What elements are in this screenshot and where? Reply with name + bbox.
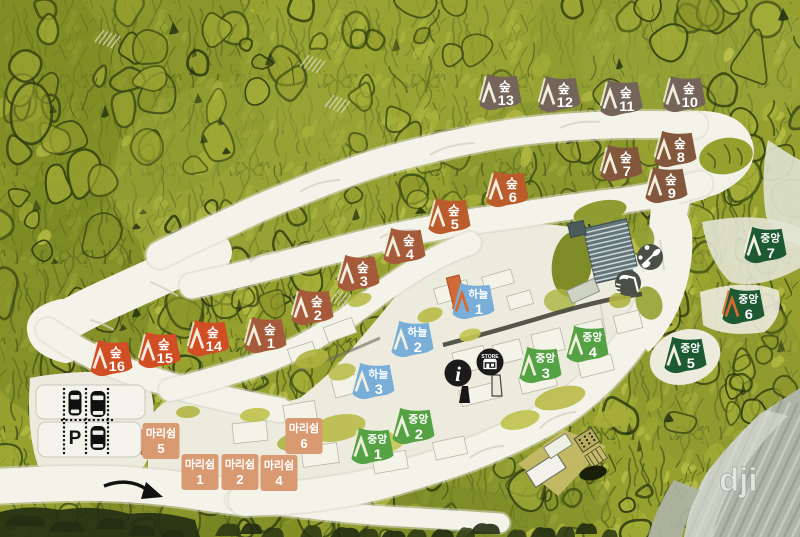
svg-text:15: 15 [157, 351, 173, 367]
svg-text:4: 4 [406, 247, 414, 263]
svg-text:4: 4 [275, 473, 283, 488]
svg-text:숲: 숲 [158, 338, 170, 352]
svg-text:3: 3 [375, 382, 383, 398]
svg-text:12: 12 [557, 95, 573, 111]
svg-text:i: i [455, 362, 461, 386]
svg-text:13: 13 [498, 93, 514, 109]
svg-text:마리쉼: 마리쉼 [225, 457, 255, 471]
svg-text:하늘: 하늘 [407, 326, 427, 339]
svg-text:1: 1 [475, 302, 483, 318]
svg-text:중앙: 중앙 [582, 332, 602, 344]
svg-text:숲: 숲 [683, 82, 695, 96]
svg-text:중앙: 중앙 [760, 233, 780, 245]
svg-text:2: 2 [314, 308, 322, 324]
svg-text:4: 4 [589, 345, 597, 361]
svg-text:1: 1 [374, 447, 382, 463]
svg-text:숲: 숲 [110, 346, 122, 360]
svg-text:하늘: 하늘 [368, 368, 388, 381]
svg-text:6: 6 [509, 190, 517, 206]
svg-text:10: 10 [682, 95, 698, 111]
svg-text:숲: 숲 [620, 151, 632, 165]
svg-text:9: 9 [668, 186, 676, 202]
svg-text:마리쉼: 마리쉼 [146, 426, 176, 440]
svg-text:숲: 숲 [665, 173, 677, 187]
svg-text:하늘: 하늘 [468, 288, 488, 301]
svg-text:숲: 숲 [558, 82, 570, 96]
svg-text:8: 8 [677, 150, 685, 166]
svg-text:7: 7 [767, 246, 775, 262]
svg-text:숲: 숲 [506, 177, 518, 191]
svg-text:숲: 숲 [311, 295, 323, 309]
svg-text:숲: 숲 [357, 261, 369, 275]
svg-text:6: 6 [745, 307, 753, 323]
svg-text:중앙: 중앙 [738, 294, 758, 306]
svg-text:숲: 숲 [207, 326, 219, 340]
svg-text:중앙: 중앙 [535, 353, 555, 365]
svg-text:2: 2 [414, 340, 422, 356]
svg-text:11: 11 [619, 99, 635, 115]
svg-text:3: 3 [360, 274, 368, 290]
svg-text:마리쉼: 마리쉼 [289, 421, 319, 435]
svg-text:숲: 숲 [448, 204, 460, 218]
svg-text:14: 14 [206, 339, 222, 355]
svg-text:마리쉼: 마리쉼 [264, 458, 294, 472]
svg-text:16: 16 [109, 359, 125, 375]
svg-text:마리쉼: 마리쉼 [185, 457, 215, 471]
svg-text:숲: 숲 [620, 86, 632, 100]
svg-text:1: 1 [196, 472, 203, 487]
svg-text:숲: 숲 [264, 323, 276, 337]
svg-text:2: 2 [415, 427, 423, 443]
svg-text:중앙: 중앙 [408, 414, 428, 426]
svg-text:1: 1 [267, 336, 275, 352]
svg-text:숲: 숲 [403, 234, 415, 248]
svg-text:6: 6 [300, 436, 307, 451]
svg-text:3: 3 [542, 366, 550, 382]
svg-text:숲: 숲 [499, 80, 511, 94]
svg-text:5: 5 [451, 217, 459, 233]
svg-text:7: 7 [623, 164, 631, 180]
svg-text:P: P [69, 428, 82, 449]
svg-text:중앙: 중앙 [680, 343, 700, 355]
svg-text:dji: dji [719, 461, 758, 498]
svg-text:5: 5 [687, 356, 695, 372]
svg-text:5: 5 [157, 441, 164, 456]
svg-text:2: 2 [236, 472, 243, 487]
svg-text:숲: 숲 [674, 137, 686, 151]
svg-text:중앙: 중앙 [367, 434, 387, 446]
